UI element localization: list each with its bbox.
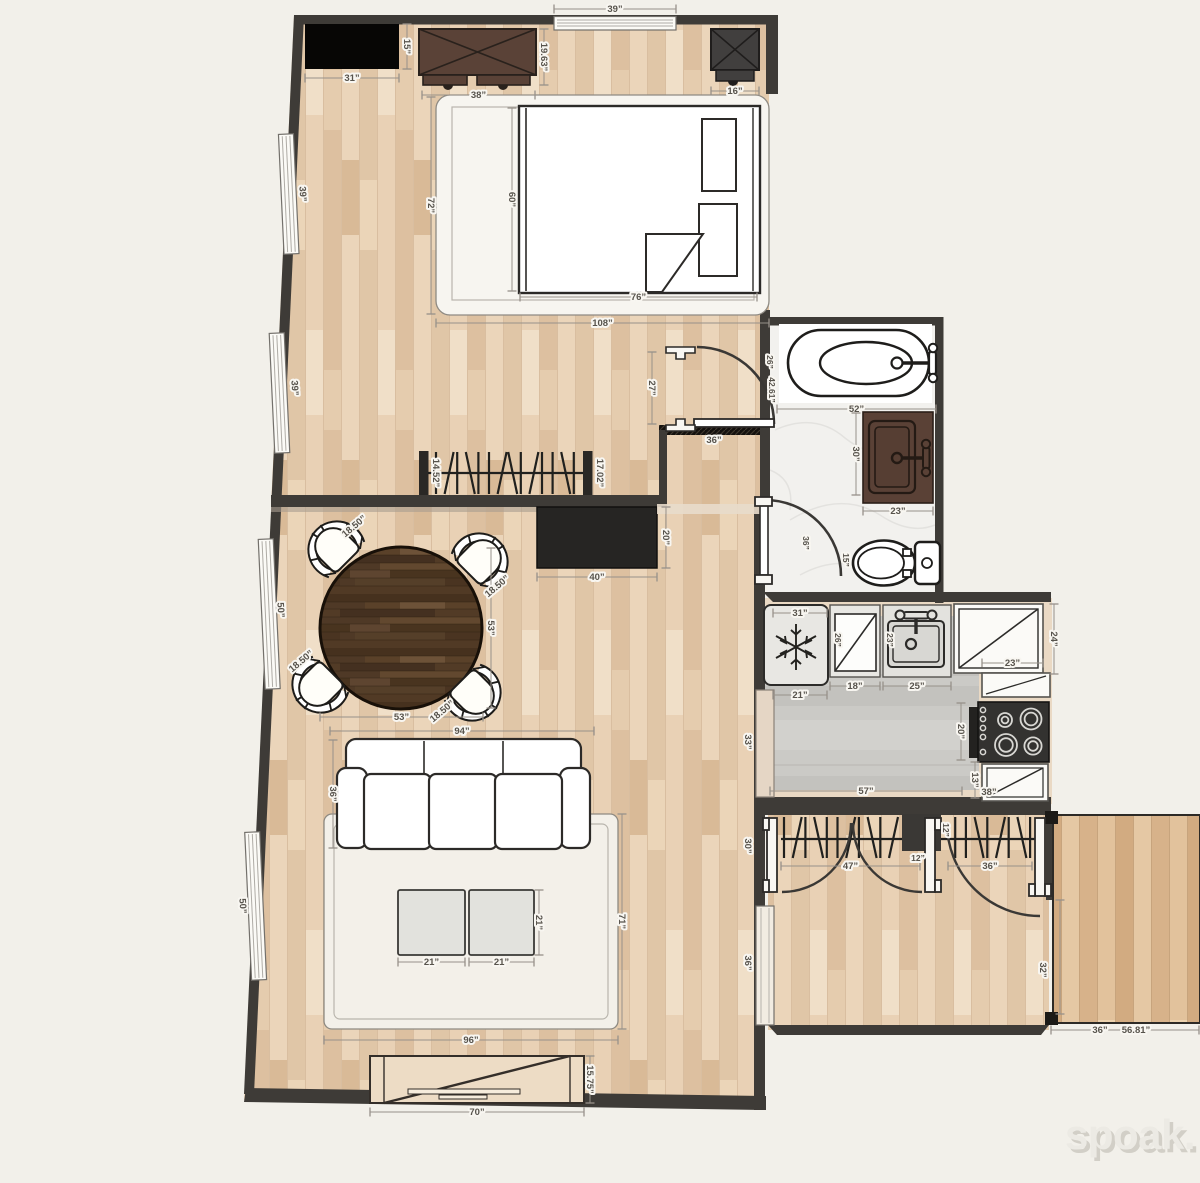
svg-text:70”: 70” bbox=[469, 1107, 485, 1118]
svg-text:39”: 39” bbox=[607, 4, 623, 15]
svg-text:30”: 30” bbox=[742, 838, 753, 854]
svg-text:76”: 76” bbox=[631, 292, 647, 303]
svg-text:38”: 38” bbox=[471, 90, 487, 101]
svg-text:15.75”: 15.75” bbox=[584, 1065, 595, 1094]
svg-text:21”: 21” bbox=[424, 957, 440, 968]
svg-text:15”: 15” bbox=[841, 553, 851, 567]
svg-text:108”: 108” bbox=[592, 318, 613, 329]
svg-text:26”: 26” bbox=[765, 355, 775, 369]
svg-text:23”: 23” bbox=[1005, 658, 1021, 669]
svg-text:13”: 13” bbox=[969, 772, 980, 788]
svg-text:39”: 39” bbox=[288, 380, 300, 396]
svg-text:42.61”: 42.61” bbox=[767, 377, 777, 403]
svg-text:23”: 23” bbox=[890, 506, 906, 517]
svg-text:60”: 60” bbox=[506, 192, 517, 208]
svg-text:40”: 40” bbox=[589, 572, 605, 583]
svg-text:24”: 24” bbox=[1048, 631, 1059, 647]
svg-text:12”: 12” bbox=[911, 853, 925, 863]
svg-text:25”: 25” bbox=[909, 681, 925, 692]
svg-text:21”: 21” bbox=[533, 915, 544, 931]
svg-text:33”: 33” bbox=[742, 734, 753, 750]
svg-text:39”: 39” bbox=[296, 186, 308, 202]
svg-text:56.81”: 56.81” bbox=[1122, 1025, 1151, 1036]
svg-text:53”: 53” bbox=[394, 712, 410, 723]
svg-text:30”: 30” bbox=[850, 446, 861, 462]
svg-text:72”: 72” bbox=[425, 198, 436, 214]
svg-text:32”: 32” bbox=[1037, 962, 1048, 978]
svg-text:21”: 21” bbox=[494, 957, 510, 968]
svg-text:50”: 50” bbox=[236, 898, 248, 914]
svg-text:96”: 96” bbox=[463, 1035, 479, 1046]
svg-text:71”: 71” bbox=[616, 914, 627, 930]
svg-text:18”: 18” bbox=[847, 681, 863, 692]
svg-text:19.63”: 19.63” bbox=[538, 43, 549, 72]
svg-text:94”: 94” bbox=[454, 726, 470, 737]
svg-text:36”: 36” bbox=[801, 536, 811, 550]
svg-text:53”: 53” bbox=[485, 620, 496, 636]
svg-text:47”: 47” bbox=[843, 861, 859, 872]
svg-text:20”: 20” bbox=[955, 724, 966, 740]
svg-text:36”: 36” bbox=[706, 435, 722, 446]
svg-text:36”: 36” bbox=[742, 955, 753, 971]
svg-text:31”: 31” bbox=[792, 608, 808, 619]
svg-text:20”: 20” bbox=[660, 530, 671, 546]
svg-text:23”: 23” bbox=[885, 633, 895, 647]
svg-text:31”: 31” bbox=[344, 73, 360, 84]
svg-text:50”: 50” bbox=[274, 602, 286, 618]
svg-text:17.02”: 17.02” bbox=[594, 459, 605, 488]
svg-text:27”: 27” bbox=[646, 380, 657, 396]
svg-text:16”: 16” bbox=[727, 86, 743, 97]
svg-text:12”: 12” bbox=[941, 823, 951, 837]
svg-text:36”: 36” bbox=[982, 861, 998, 872]
svg-text:38”: 38” bbox=[981, 787, 997, 798]
svg-text:36”: 36” bbox=[1092, 1025, 1108, 1036]
svg-text:14.52”: 14.52” bbox=[430, 459, 441, 488]
svg-text:26”: 26” bbox=[833, 633, 843, 647]
svg-text:15”: 15” bbox=[401, 39, 412, 55]
svg-text:57”: 57” bbox=[858, 786, 874, 797]
svg-text:21”: 21” bbox=[792, 690, 808, 701]
svg-text:spoak.: spoak. bbox=[1065, 1111, 1195, 1158]
svg-text:36”: 36” bbox=[327, 786, 338, 802]
